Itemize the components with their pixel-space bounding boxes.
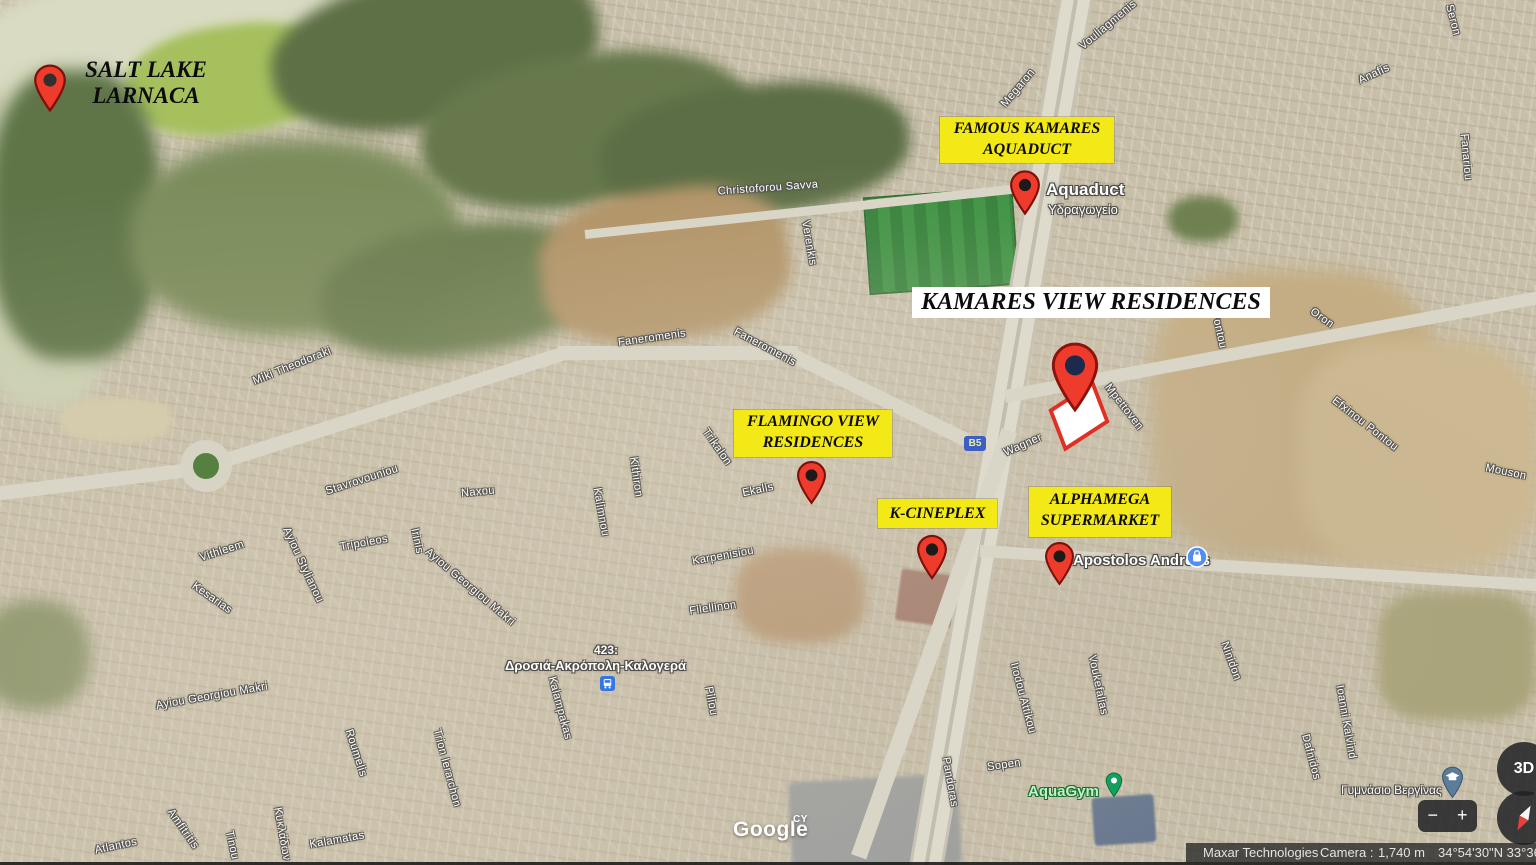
street-label: Kesarias <box>190 580 235 616</box>
flamingo-line1: FLAMINGO VIEW <box>734 412 892 433</box>
school-pin-icon[interactable] <box>1441 766 1464 798</box>
street-label: Kalampakas <box>546 675 574 740</box>
tree-cluster <box>1168 196 1238 242</box>
alphamega-line1: ALPHAMEGA <box>1029 490 1171 511</box>
street-label: Trion Ierarchon <box>431 728 463 809</box>
street-label: Voukefalias <box>1086 654 1110 716</box>
street-label: Fanariou <box>1458 133 1474 180</box>
tree-cluster <box>0 600 90 710</box>
street-label: Dafnidos <box>1299 733 1323 781</box>
place-label-aquagym: AquaGym <box>1028 783 1099 800</box>
sand-pit <box>60 398 172 442</box>
street-label: Ekalis <box>741 481 775 499</box>
bus-stop-name: Δροσιά-Ακρόπολη-Καλογερά <box>505 658 686 673</box>
street-label: Mpettoven <box>1102 382 1145 433</box>
salt-lake-line2: LARNACA <box>70 83 222 109</box>
place-label-aquaduct: Aquaduct <box>1046 180 1124 200</box>
bus-stop-icon[interactable] <box>600 676 615 691</box>
street-label: Roumelis <box>343 728 370 778</box>
street-label: Sopen <box>986 757 1021 774</box>
street-label: Vithleem <box>198 538 245 564</box>
street-label: Filellinon <box>689 599 738 617</box>
kamares-view-residences-annotation: KAMARES VIEW RESIDENCES <box>912 287 1270 318</box>
salt-lake-line1: SALT LAKE <box>70 57 222 83</box>
flamingo-view-pin <box>796 459 827 506</box>
satellite-map[interactable]: Christoforou SavvaVerenkisFaneromenisFan… <box>0 0 1536 865</box>
bus-stop-code: 423: <box>594 643 618 657</box>
road-faneromenis-mid <box>205 347 564 472</box>
alphamega-supermarket-annotation: ALPHAMEGA SUPERMARKET <box>1029 487 1171 537</box>
3d-button[interactable]: 3D <box>1497 742 1536 796</box>
shopping-poi-icon[interactable] <box>1186 546 1208 568</box>
aquaduct-line1: FAMOUS KAMARES <box>940 119 1114 140</box>
street-label: Ninidon <box>1219 640 1244 682</box>
zoom-in-button[interactable]: + <box>1448 800 1478 832</box>
flamingo-line2: RESIDENCES <box>734 433 892 454</box>
roundabout <box>180 440 232 492</box>
google-logo-country: CY <box>793 814 808 825</box>
road-badge-b5: B5 <box>964 436 986 451</box>
street-label: Anafis <box>1357 62 1392 87</box>
roundabout-green-island <box>193 453 219 479</box>
street-label: Kithiron <box>627 456 645 498</box>
street-label: Trikalon <box>700 426 734 467</box>
k-cineplex-annotation: K-CINEPLEX <box>878 499 997 528</box>
aquaduct-pin <box>1009 169 1041 216</box>
compass-control[interactable] <box>1497 791 1536 845</box>
street-label: Amfitritis <box>165 807 201 852</box>
street-label: Irodou Attikou <box>1008 661 1038 734</box>
alphamega-pin <box>1044 540 1075 587</box>
k-cineplex-pin <box>916 533 948 581</box>
camera-distance: 1,740 m <box>1378 845 1425 860</box>
street-label: Megaron <box>999 66 1038 109</box>
flamingo-view-residences-annotation: FLAMINGO VIEW RESIDENCES <box>734 410 892 457</box>
street-label: Stavrovouniou <box>324 463 400 498</box>
salt-lake-annotation: SALT LAKE LARNACA <box>70 57 222 110</box>
zoom-out-button[interactable]: − <box>1418 800 1448 832</box>
salt-lake-pin <box>33 62 67 114</box>
alphamega-line2: SUPERMARKET <box>1029 511 1171 532</box>
street-label: Kalimnou <box>591 487 611 537</box>
place-label-school: Γυμνάσιο Βεργίνας <box>1341 783 1442 797</box>
famous-kamares-aquaduct-annotation: FAMOUS KAMARES AQUADUCT <box>940 117 1114 163</box>
cursor-coordinates: 34°54'30"N 33°36'09" <box>1438 845 1536 860</box>
dirt-lot <box>735 548 865 643</box>
open-field <box>1300 340 1536 570</box>
street-label: Tripoleos <box>339 533 389 553</box>
street-label: Naxou <box>461 485 496 500</box>
street-label: Irinis <box>408 527 425 555</box>
zoom-control: − + <box>1418 800 1477 832</box>
attribution-bar: Maxar Technologies Camera : 1,740 m 34°5… <box>1186 843 1536 862</box>
street-label: Piliou <box>703 686 720 717</box>
aquaduct-line2: AQUADUCT <box>940 140 1114 161</box>
imagery-attribution: Maxar Technologies <box>1203 845 1318 860</box>
camera-label: Camera : <box>1320 845 1373 860</box>
street-label: Ayiou Georgiou Makri <box>155 680 269 712</box>
street-label: Miki Theodoraki <box>251 345 333 387</box>
street-label: Ayiou Stylianou <box>280 525 325 604</box>
kamares-view-pin <box>1050 338 1100 416</box>
street-label: Atlantos <box>94 836 139 857</box>
street-label: Verenkis <box>799 220 819 267</box>
street-label: Seron <box>1443 3 1463 36</box>
street-label: Ioanni Kalvind <box>1334 684 1359 760</box>
aquagym-building <box>1091 794 1156 846</box>
place-label-aquaduct-greek: Υδραγωγείο <box>1048 202 1118 217</box>
aquagym-pin-icon[interactable] <box>1105 772 1123 799</box>
road-faneromenis-east <box>558 346 798 360</box>
street-label: Ayiou Georgiou Makri <box>423 546 518 628</box>
google-logo: Google CY <box>733 818 808 842</box>
street-label: Tinou <box>223 830 241 861</box>
street-label: Κυκλάδων <box>271 806 292 861</box>
open-field <box>1378 592 1536 720</box>
street-label: Kalamatas <box>309 829 366 850</box>
